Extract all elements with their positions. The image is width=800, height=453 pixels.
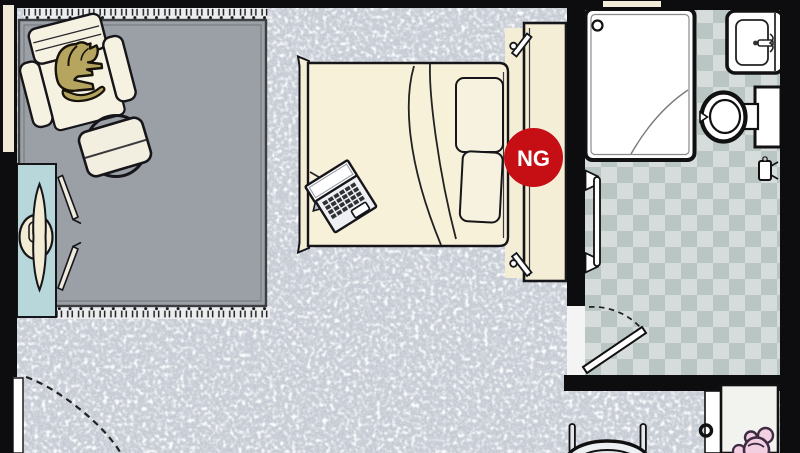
svg-text:NG: NG xyxy=(517,146,550,171)
